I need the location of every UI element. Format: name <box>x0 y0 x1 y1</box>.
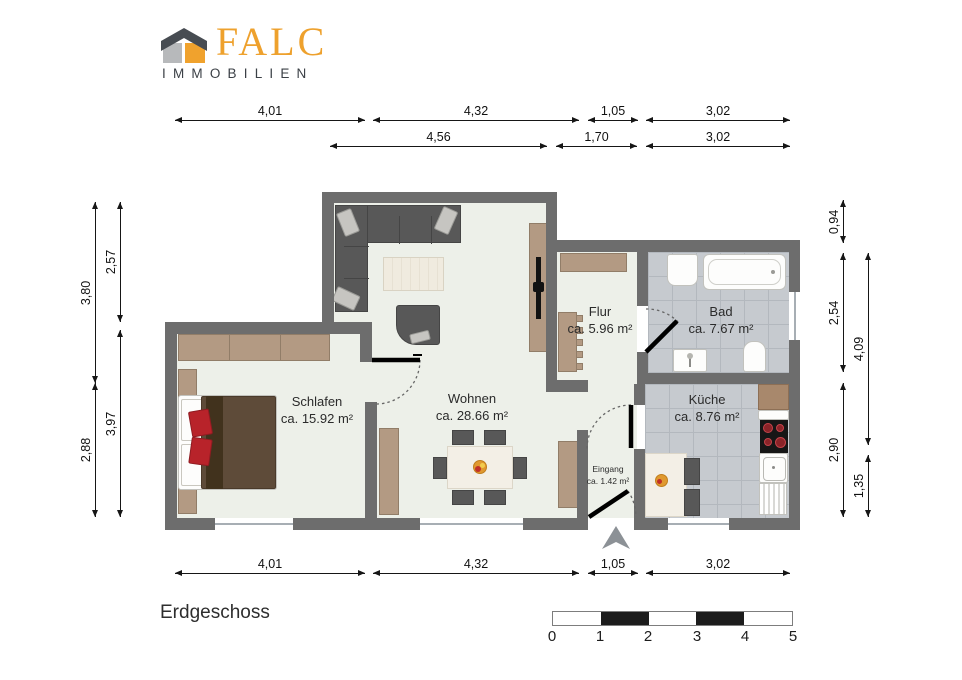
dim-left-inner-2: 3,97 <box>120 330 121 517</box>
scale-label: 5 <box>789 628 797 645</box>
dim-value: 1,70 <box>584 130 608 144</box>
room-area: ca. 1.42 m² <box>587 475 630 487</box>
door-arcs <box>376 309 680 517</box>
dim-value: 4,32 <box>464 104 488 118</box>
scale-label: 2 <box>644 628 652 645</box>
room-label-flur: Flur ca. 5.96 m² <box>567 303 632 337</box>
dim-value: 3,80 <box>79 280 93 304</box>
dim-value: 2,90 <box>827 438 841 462</box>
dim-value: 2,57 <box>104 250 118 274</box>
floor-level-title: Erdgeschoss <box>160 602 270 624</box>
dim-top1-1: 4,01 <box>175 120 365 121</box>
scale-label: 4 <box>741 628 749 645</box>
dim-value: 0,94 <box>827 209 841 233</box>
scale-bar-segment <box>601 612 649 625</box>
dim-value: 3,02 <box>706 557 730 571</box>
dim-value: 2,54 <box>827 300 841 324</box>
room-label-schlafen: Schlafen ca. 15.92 m² <box>281 393 353 427</box>
dim-value: 4,56 <box>426 130 450 144</box>
dim-value: 3,02 <box>706 130 730 144</box>
dim-top1-4: 3,02 <box>646 120 790 121</box>
scale-bar-segment <box>696 612 744 625</box>
dim-top2-2: 1,70 <box>556 146 637 147</box>
room-name: Eingang <box>587 463 630 475</box>
dim-right-inner-2: 2,54 <box>843 253 844 372</box>
dim-top2-1: 4,56 <box>330 146 547 147</box>
dim-value: 1,05 <box>601 557 625 571</box>
room-name: Bad <box>688 303 753 320</box>
dim-value: 4,01 <box>258 104 282 118</box>
door-leaves <box>372 321 677 517</box>
room-area: ca. 28.66 m² <box>436 407 508 424</box>
dim-right-outer-1: 4,09 <box>868 253 869 445</box>
dim-bottom-4: 3,02 <box>646 573 790 574</box>
dim-top1-2: 4,32 <box>373 120 579 121</box>
room-label-wohnen: Wohnen ca. 28.66 m² <box>436 390 508 424</box>
room-area: ca. 15.92 m² <box>281 410 353 427</box>
room-name: Schlafen <box>281 393 353 410</box>
room-area: ca. 5.96 m² <box>567 320 632 337</box>
room-area: ca. 8.76 m² <box>674 408 739 425</box>
dim-top1-3: 1,05 <box>588 120 638 121</box>
north-arrow-icon <box>602 526 630 549</box>
scale-bar: 0 1 2 3 4 5 <box>552 611 793 651</box>
dim-left-outer-2: 2,88 <box>95 383 96 517</box>
door-leaf-eingang <box>589 491 628 517</box>
dim-value: 4,09 <box>852 337 866 361</box>
floor-plan-page: FALC IMMOBILIEN <box>0 0 962 680</box>
dim-value: 3,97 <box>104 411 118 435</box>
dim-right-outer-2: 1,35 <box>868 455 869 517</box>
door-swing-layer <box>0 0 962 680</box>
dim-value: 1,05 <box>601 104 625 118</box>
dim-right-inner-1: 0,94 <box>843 200 844 243</box>
room-area: ca. 7.67 m² <box>688 320 753 337</box>
dim-left-outer-1: 3,80 <box>95 202 96 383</box>
scale-label: 3 <box>693 628 701 645</box>
dim-right-inner-3: 2,90 <box>843 383 844 517</box>
dim-top2-3: 3,02 <box>646 146 790 147</box>
dim-value: 4,32 <box>464 557 488 571</box>
dim-value: 1,35 <box>852 474 866 498</box>
scale-label: 0 <box>548 628 556 645</box>
room-label-bad: Bad ca. 7.67 m² <box>688 303 753 337</box>
dim-left-inner-1: 2,57 <box>120 202 121 322</box>
dim-bottom-1: 4,01 <box>175 573 365 574</box>
door-leaf-bad <box>646 321 677 352</box>
room-name: Wohnen <box>436 390 508 407</box>
scale-bar-track <box>552 611 793 626</box>
dim-value: 2,88 <box>79 438 93 462</box>
dim-value: 4,01 <box>258 557 282 571</box>
room-name: Flur <box>567 303 632 320</box>
dim-value: 3,02 <box>706 104 730 118</box>
room-label-kueche: Küche ca. 8.76 m² <box>674 391 739 425</box>
scale-label: 1 <box>596 628 604 645</box>
room-label-eingang: Eingang ca. 1.42 m² <box>587 463 630 487</box>
dim-bottom-2: 4,32 <box>373 573 579 574</box>
room-name: Küche <box>674 391 739 408</box>
dim-bottom-3: 1,05 <box>588 573 638 574</box>
